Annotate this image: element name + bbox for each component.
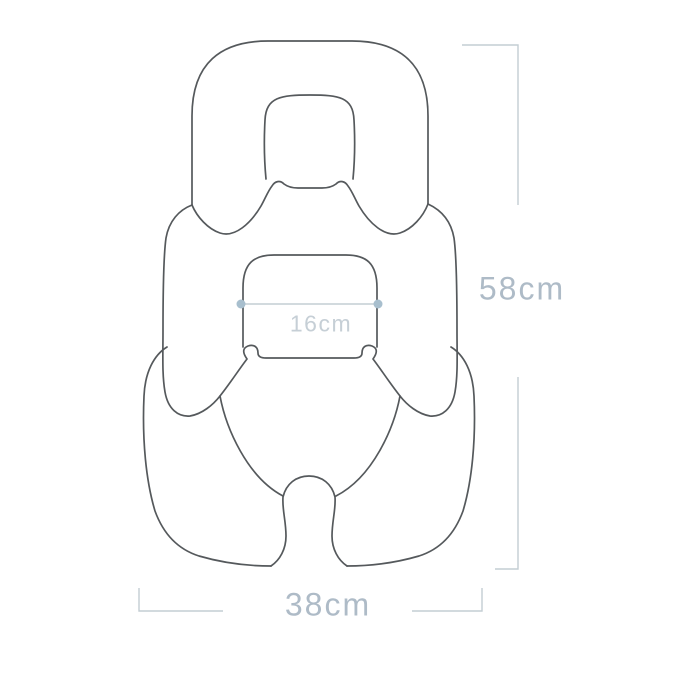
- inner-width-right-dot: [374, 300, 383, 309]
- head-cushion-outline: [264, 95, 354, 179]
- height-bracket-bottom: [495, 377, 518, 569]
- width-bracket-left: [139, 588, 223, 611]
- seat-pad-right-outline: [347, 347, 475, 566]
- seat-bowl-left-edge: [220, 396, 283, 496]
- dimension-diagram: 58cm 38cm 16cm: [0, 0, 697, 677]
- head-support-outline: [192, 41, 428, 205]
- height-dimension-label: 58cm: [479, 271, 565, 308]
- head-support-bottom-wave: [192, 182, 428, 234]
- seat-pad-left-outline: [143, 347, 271, 566]
- crotch-stem-outline: [271, 476, 347, 566]
- inner-width-dimension-label: 16cm: [290, 311, 352, 338]
- inner-width-left-dot: [237, 300, 246, 309]
- seat-pad-line-art: [0, 0, 697, 677]
- height-bracket-top: [462, 45, 518, 205]
- seat-bowl-right-edge: [336, 396, 400, 496]
- width-bracket-right: [412, 588, 482, 611]
- width-dimension-label: 38cm: [285, 587, 371, 624]
